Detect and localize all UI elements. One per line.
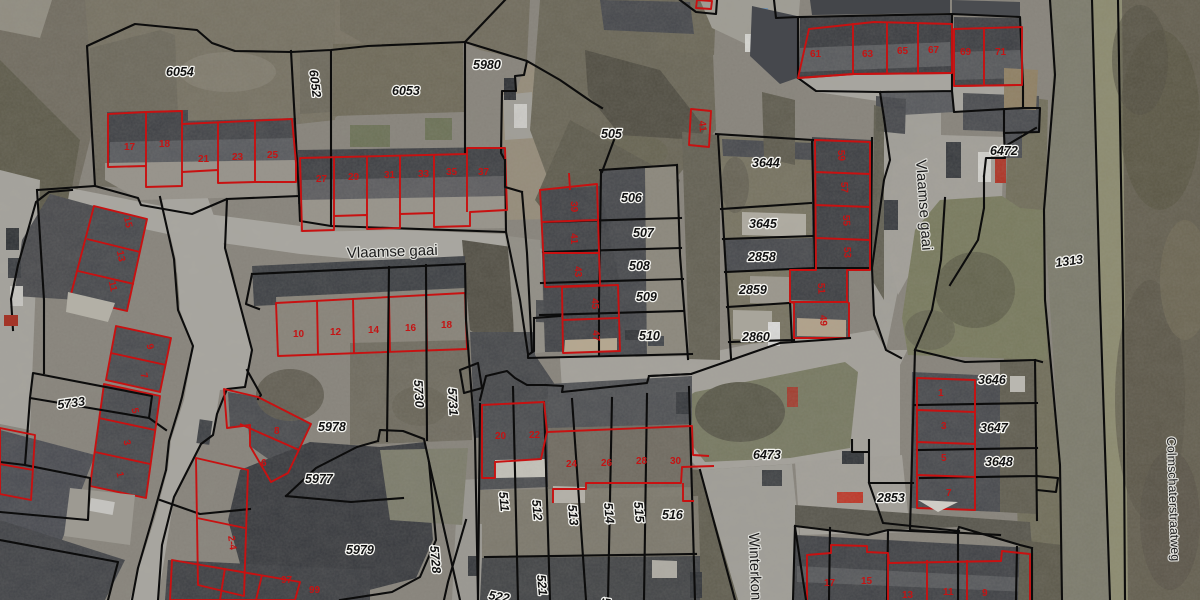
svg-text:2859: 2859 — [738, 283, 767, 297]
svg-text:99: 99 — [309, 585, 321, 596]
svg-text:510: 510 — [639, 329, 660, 343]
svg-text:63: 63 — [862, 49, 874, 60]
svg-text:2-4: 2-4 — [225, 535, 238, 551]
svg-text:57: 57 — [838, 182, 849, 194]
svg-text:14: 14 — [368, 325, 380, 336]
svg-text:3648: 3648 — [985, 455, 1013, 469]
svg-text:508: 508 — [629, 259, 650, 273]
svg-text:3644: 3644 — [752, 156, 780, 170]
svg-text:507: 507 — [633, 226, 655, 240]
svg-text:2858: 2858 — [747, 250, 776, 264]
svg-text:9: 9 — [982, 588, 988, 599]
svg-text:Vlaamse gaai: Vlaamse gaai — [347, 242, 438, 262]
svg-text:67: 67 — [928, 45, 940, 56]
svg-text:15: 15 — [861, 576, 873, 587]
svg-text:16: 16 — [405, 323, 417, 334]
svg-text:49: 49 — [817, 315, 828, 327]
svg-text:27: 27 — [316, 174, 328, 185]
svg-text:47: 47 — [590, 330, 601, 342]
svg-text:37: 37 — [478, 167, 490, 178]
svg-text:24: 24 — [566, 459, 578, 470]
svg-text:18: 18 — [159, 139, 171, 150]
svg-text:51: 51 — [815, 283, 826, 295]
svg-text:5979: 5979 — [346, 543, 374, 557]
svg-text:6054: 6054 — [166, 65, 194, 79]
svg-text:516: 516 — [662, 508, 684, 522]
svg-text:45: 45 — [589, 298, 600, 310]
svg-text:513: 513 — [565, 504, 581, 526]
svg-text:2860: 2860 — [741, 330, 770, 344]
svg-text:5728: 5728 — [427, 545, 443, 574]
svg-text:5730: 5730 — [411, 379, 426, 408]
svg-text:5: 5 — [941, 453, 947, 464]
svg-text:5731: 5731 — [445, 387, 460, 416]
svg-text:26: 26 — [601, 458, 613, 469]
svg-text:69: 69 — [960, 47, 972, 58]
svg-text:31: 31 — [384, 170, 396, 181]
svg-text:6: 6 — [261, 458, 267, 469]
svg-text:11: 11 — [943, 587, 954, 598]
svg-text:511: 511 — [496, 491, 512, 512]
svg-text:3647: 3647 — [980, 421, 1009, 435]
svg-text:61: 61 — [810, 49, 822, 60]
svg-text:41: 41 — [696, 120, 708, 132]
svg-text:23: 23 — [232, 152, 244, 163]
svg-text:1: 1 — [938, 388, 944, 399]
svg-text:59: 59 — [835, 150, 846, 162]
svg-text:3645: 3645 — [749, 217, 778, 231]
svg-text:17: 17 — [124, 142, 136, 153]
svg-text:71: 71 — [995, 47, 1007, 58]
svg-text:29: 29 — [348, 172, 360, 183]
svg-text:18: 18 — [441, 320, 453, 331]
svg-text:25: 25 — [267, 150, 279, 161]
svg-text:2853: 2853 — [876, 491, 905, 505]
svg-text:10: 10 — [293, 329, 305, 340]
svg-text:3: 3 — [941, 421, 947, 432]
svg-text:5977: 5977 — [305, 472, 334, 486]
svg-text:12: 12 — [330, 327, 342, 338]
svg-text:17: 17 — [824, 578, 836, 589]
svg-text:6472: 6472 — [990, 144, 1018, 158]
svg-text:28: 28 — [636, 456, 648, 467]
svg-text:521: 521 — [534, 574, 550, 596]
svg-text:5978: 5978 — [318, 420, 346, 434]
svg-text:20: 20 — [495, 431, 507, 442]
svg-text:Winterkoning: Winterkoning — [745, 533, 765, 600]
svg-text:35: 35 — [446, 167, 458, 178]
svg-text:13: 13 — [902, 590, 914, 600]
svg-text:3646: 3646 — [978, 373, 1007, 387]
svg-text:6473: 6473 — [753, 448, 781, 462]
svg-text:55: 55 — [840, 215, 851, 227]
svg-text:6053: 6053 — [392, 84, 420, 98]
svg-text:505: 505 — [601, 127, 623, 141]
svg-text:41: 41 — [568, 233, 579, 245]
svg-text:8: 8 — [274, 426, 280, 437]
svg-text:43: 43 — [572, 266, 583, 278]
svg-text:512: 512 — [529, 499, 545, 521]
svg-text:39: 39 — [568, 201, 579, 213]
svg-text:21: 21 — [198, 154, 210, 165]
svg-text:509: 509 — [636, 290, 657, 304]
svg-text:514: 514 — [601, 502, 617, 524]
svg-text:506: 506 — [621, 191, 643, 205]
svg-text:33: 33 — [418, 169, 430, 180]
svg-text:53: 53 — [841, 247, 852, 259]
svg-text:515: 515 — [631, 501, 647, 524]
svg-text:22: 22 — [529, 430, 541, 441]
svg-text:65: 65 — [897, 46, 909, 57]
svg-text:7: 7 — [946, 488, 952, 499]
svg-text:5980: 5980 — [473, 58, 501, 72]
svg-text:30: 30 — [670, 456, 682, 467]
svg-text:97: 97 — [281, 575, 293, 586]
